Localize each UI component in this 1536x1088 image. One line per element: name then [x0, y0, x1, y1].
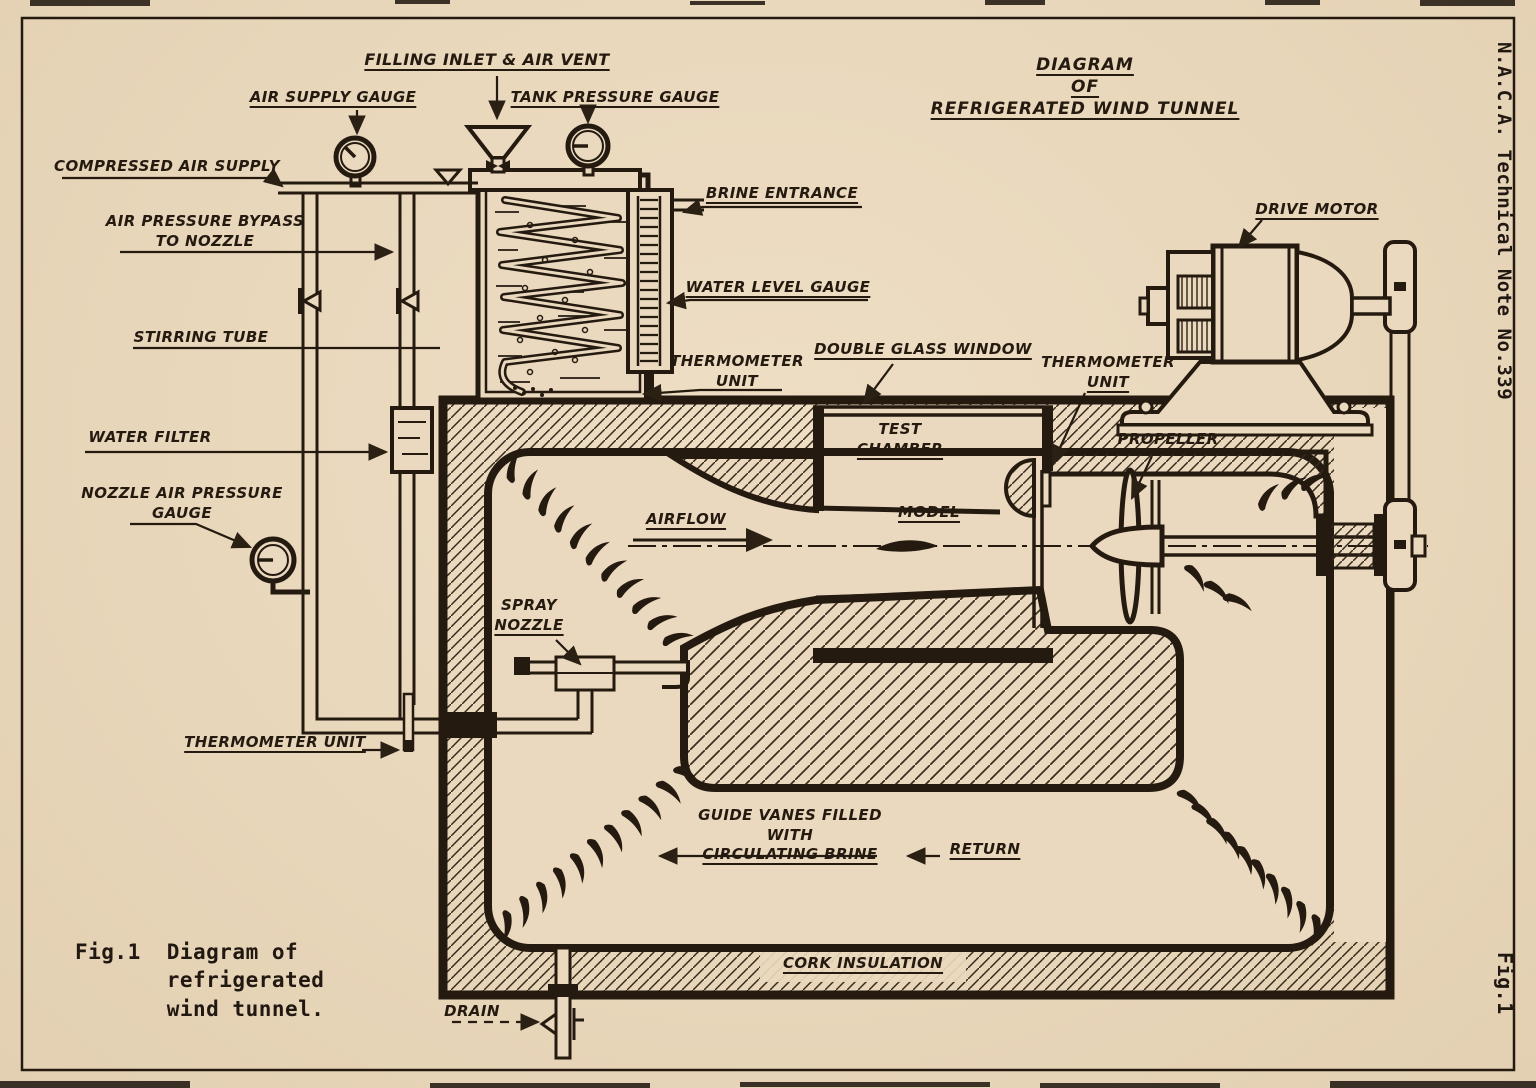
- label-line: UNIT: [670, 372, 804, 392]
- label-line: GAUGE: [81, 504, 283, 524]
- label-water-filter: WATER FILTER: [88, 428, 211, 448]
- label-line: WATER FILTER: [88, 428, 211, 448]
- page-title-line: REFRIGERATED WIND TUNNEL: [931, 98, 1240, 120]
- label-filling-inlet: FILLING INLET & AIR VENT: [364, 50, 609, 71]
- label-compressed-air-supply: COMPRESSED AIR SUPPLY: [54, 157, 280, 177]
- air-supply-gauge-dial: [336, 138, 374, 186]
- figure-caption-text: Diagram of refrigerated wind tunnel.: [167, 938, 325, 1023]
- label-stirring-tube: STIRRING TUBE: [134, 328, 269, 348]
- label-line: AIRFLOW: [646, 510, 726, 530]
- label-line: DRAIN: [444, 1002, 500, 1022]
- filling-funnel: [468, 127, 528, 172]
- nozzle-air-pressure-gauge-dial: [252, 539, 310, 592]
- label-test-chamber: TEST CHAMBER: [857, 420, 943, 459]
- label-line: THERMOMETER UNIT: [184, 733, 366, 753]
- label-return: RETURN: [950, 840, 1021, 860]
- page-title-line: OF: [931, 76, 1240, 98]
- label-line: SPRAY: [494, 596, 563, 616]
- label-line: WITH: [698, 826, 882, 846]
- label-line: CHAMBER: [857, 440, 943, 460]
- label-line: RETURN: [950, 840, 1021, 860]
- label-drive-motor: DRIVE MOTOR: [1255, 200, 1378, 220]
- margin-fig-number: Fig.1: [1491, 952, 1518, 1015]
- label-line: BRINE ENTRANCE: [706, 184, 858, 204]
- label-line: GUIDE VANES FILLED: [698, 806, 882, 826]
- motor-winding: [1178, 320, 1213, 352]
- label-propeller: PROPELLER: [1117, 430, 1218, 450]
- label-line: CIRCULATING BRINE: [698, 845, 882, 865]
- figure-caption: Fig.1 Diagram of refrigerated wind tunne…: [75, 938, 324, 1023]
- label-line: DOUBLE GLASS WINDOW: [814, 340, 1032, 360]
- caption-line: wind tunnel.: [167, 995, 325, 1023]
- label-line: AIR PRESSURE BYPASS: [106, 212, 304, 232]
- water-level-gauge-column: [628, 190, 672, 372]
- caption-line: Diagram of: [167, 938, 325, 966]
- label-line: NOZZLE: [494, 616, 563, 636]
- margin-fig-text: Fig.1: [1493, 952, 1517, 1015]
- label-line: WATER LEVEL GAUGE: [686, 278, 871, 298]
- label-thermometer-unit-pipe: THERMOMETER UNIT: [184, 733, 366, 753]
- page-title-line: DIAGRAM: [931, 54, 1240, 76]
- figure-caption-number: Fig.1: [75, 938, 141, 1023]
- label-line: TEST: [857, 420, 943, 440]
- motor-body: [1213, 246, 1297, 362]
- label-line: UNIT: [1041, 373, 1175, 393]
- label-thermometer-unit-tank: THERMOMETER UNIT: [670, 352, 804, 391]
- label-cork-insulation: CORK INSULATION: [783, 954, 943, 974]
- label-tank-pressure-gauge: TANK PRESSURE GAUGE: [511, 88, 720, 108]
- caption-line: refrigerated: [167, 966, 325, 994]
- label-line: STIRRING TUBE: [134, 328, 269, 348]
- label-line: NOZZLE AIR PRESSURE: [81, 484, 283, 504]
- margin-note-text: N.A.C.A. Technical Note No.339: [1493, 42, 1515, 400]
- label-line: CORK INSULATION: [783, 954, 943, 974]
- label-line: MODEL: [898, 503, 960, 523]
- tunnel-shell: [443, 400, 1390, 995]
- belt-pulleys: [1385, 242, 1425, 590]
- paper-sheet: DIAGRAM OF REFRIGERATED WIND TUNNEL FILL…: [0, 0, 1536, 1088]
- page-title: DIAGRAM OF REFRIGERATED WIND TUNNEL: [931, 54, 1240, 120]
- label-air-pressure-bypass: AIR PRESSURE BYPASS TO NOZZLE: [106, 212, 304, 251]
- label-drain: DRAIN: [444, 1002, 500, 1022]
- thermometer-unit-sensor-pipe: [404, 694, 413, 752]
- margin-note: N.A.C.A. Technical Note No.339: [1490, 42, 1516, 400]
- label-line: THERMOMETER: [1041, 353, 1175, 373]
- label-line: TANK PRESSURE GAUGE: [511, 88, 720, 108]
- label-spray-nozzle: SPRAY NOZZLE: [494, 596, 563, 635]
- label-nozzle-air-pressure-gauge: NOZZLE AIR PRESSURE GAUGE: [81, 484, 283, 523]
- label-line: FILLING INLET & AIR VENT: [364, 50, 609, 71]
- motor-winding: [1178, 276, 1213, 308]
- label-line: COMPRESSED AIR SUPPLY: [54, 157, 280, 177]
- label-double-glass-window: DOUBLE GLASS WINDOW: [814, 340, 1032, 360]
- label-thermometer-unit-chamber: THERMOMETER UNIT: [1041, 353, 1175, 392]
- label-line: TO NOZZLE: [106, 232, 304, 252]
- tank-pressure-gauge-dial: [568, 126, 608, 175]
- supply-tank: [470, 170, 704, 400]
- label-water-level-gauge: WATER LEVEL GAUGE: [686, 278, 871, 298]
- water-filter-box: [392, 408, 432, 472]
- label-brine-entrance: BRINE ENTRANCE: [706, 184, 858, 204]
- label-air-supply-gauge: AIR SUPPLY GAUGE: [250, 88, 417, 108]
- shaft-bearing: [1330, 524, 1374, 568]
- label-airflow: AIRFLOW: [646, 510, 726, 530]
- label-model: MODEL: [898, 503, 960, 523]
- label-line: THERMOMETER: [670, 352, 804, 372]
- label-line: AIR SUPPLY GAUGE: [250, 88, 417, 108]
- label-line: DRIVE MOTOR: [1255, 200, 1378, 220]
- label-guide-vanes: GUIDE VANES FILLED WITH CIRCULATING BRIN…: [698, 806, 882, 865]
- label-line: PROPELLER: [1117, 430, 1218, 450]
